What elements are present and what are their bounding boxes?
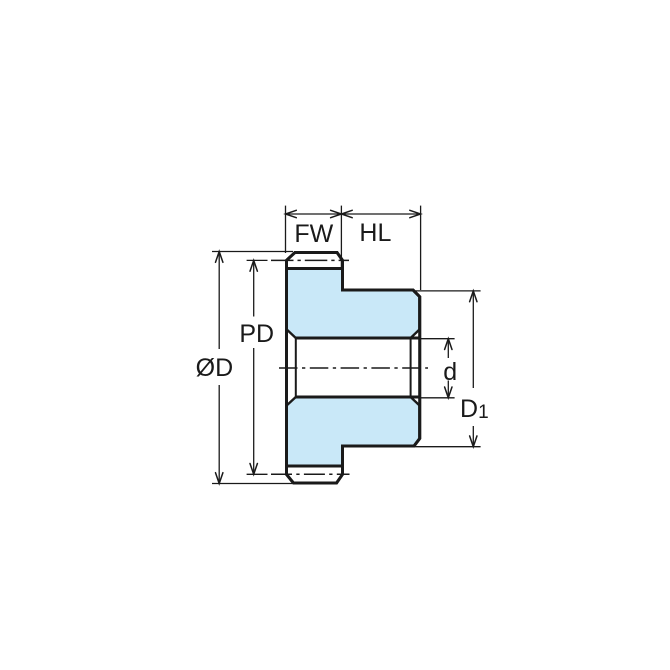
svg-text:PD: PD (239, 320, 274, 348)
svg-text:HL: HL (359, 219, 391, 247)
svg-text:FW: FW (294, 220, 333, 248)
svg-text:ØD: ØD (196, 354, 234, 382)
svg-text:d: d (443, 358, 457, 386)
